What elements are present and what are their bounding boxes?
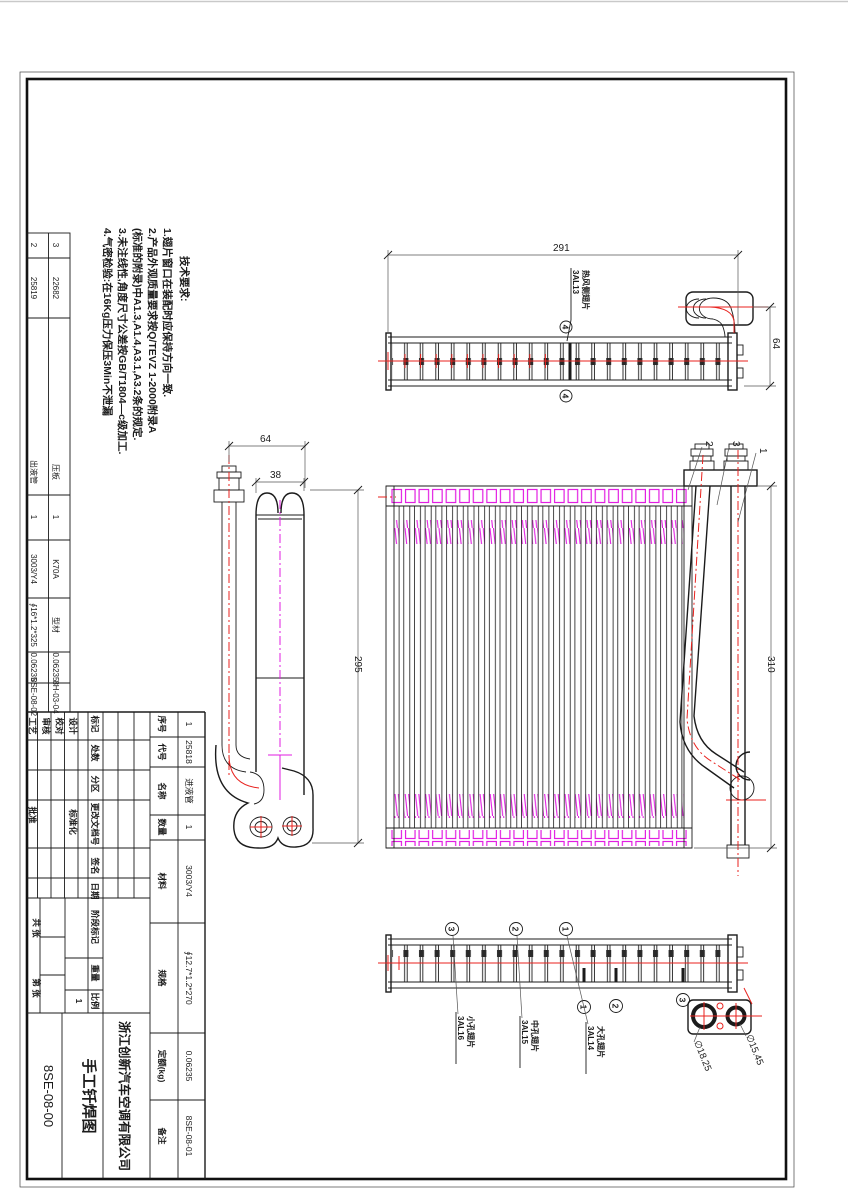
drawing-sheet: 技术要求: 1.翅片窗口在装配时应保持方向一致. 2.产品外观质量要求按Q/TE… [0,0,848,1200]
header-remark: 备注 [157,1126,167,1145]
notes-line-4: 3.未注线性,角度尺寸公差按GB/T1804—c级加工. [116,228,129,454]
cell: 3003/Y4 [184,865,194,897]
label-stage-mark: 阶段标记 [90,910,100,945]
callout-2: 2 [703,441,714,447]
cell: 0.06235 [184,1051,194,1082]
label-count: 处数 [90,743,100,762]
dim-295: 295 [310,486,364,847]
header-spec: 规格 [157,969,167,987]
cell: 0.06235 [51,653,60,682]
cell: ∮12.7*1.2*270 [184,951,194,1005]
drawing-title: 手工钎焊图 [80,1058,98,1133]
callout-fin1: 1 [561,927,571,932]
dim-310-text: 310 [765,656,776,673]
label-mark: 标记 [90,714,100,733]
header-name: 名称 [157,782,167,800]
cell: 25819 [29,277,38,300]
company-name: 浙江创新汽车空调有限公司 [117,1021,132,1171]
label-standardize: 标准化 [68,808,78,835]
fin2-code: 3AL15 [520,1020,529,1045]
fin3-code: 3AL16 [456,1016,465,1041]
label-zone: 分区 [90,775,100,793]
label-scale: 比例 [90,992,100,1010]
dim-291: 291 [384,243,742,333]
dim-64-side-text: 64 [260,434,272,445]
fin2-name: 中孔翅片 [530,1020,540,1052]
label-audit: 审核 [41,717,51,735]
notes-line-2: 2.产品外观质量要求按Q/TEVZ 1-2000附录A [146,228,159,434]
outlet-pipe [680,455,766,800]
callout-fin2: 2 [511,927,521,932]
cell: 3003/Y4 [29,554,38,584]
title-block: 工艺 审核 校对 设计 批准 标准化 标记 处数 分区 更改文档号 签名 日期 … [27,712,205,1179]
dim-port-large: ∅18.25 [691,1039,713,1073]
fin1-name: 大孔翅片 [596,1026,606,1058]
top-fitting-block [678,292,768,337]
side-elbow-casting [216,745,313,848]
fin4-code: 3AL13 [571,270,580,295]
port-flange [688,988,762,1034]
drawing-number: 8SE-08-00 [41,1065,56,1127]
fin1-code: 3AL14 [586,1026,595,1051]
dim-64-side: 64 [225,434,309,488]
front-fittings [684,444,757,486]
fin3-name: 小孔翅片 [466,1015,476,1048]
title-block-labels: 工艺 审核 校对 设计 批准 标准化 标记 处数 分区 更改文档号 签名 日期 … [28,714,101,1010]
cell: 1 [184,722,194,727]
dim-38: 38 [252,470,308,493]
cell: 1 [184,825,194,830]
notes-line-5: 4.气密检验:在16Kg压力保压3Min不泄漏 [101,228,114,416]
cell: ∮16*1.2*325 [29,603,38,647]
port-dims: ∅18.25 ∅15.45 [691,1024,765,1073]
technical-notes: 技术要求: 1.翅片窗口在装配时应保持方向一致. 2.产品外观质量要求按Q/TE… [101,228,191,454]
callout-4-bottom: 4 [561,394,571,399]
cell: 25818 [184,740,194,764]
bom-row-3: 3 22682 压板 1 K70A 型材 0.06235 8H-03-04 [51,243,61,714]
cell: 进液管 [184,778,194,804]
cell: 22682 [51,277,60,300]
callout-3: 3 [730,441,741,447]
dim-38-text: 38 [270,470,282,481]
header-code: 代号 [157,742,167,761]
view-bottom: 3 2 1 1 2 3 小孔翅片 3AL16 中孔翅片 3AL15 [378,923,765,1075]
callout-fin3: 3 [447,927,457,932]
dim-64-top: 64 [744,303,781,390]
label-weight: 重量 [90,964,100,982]
label-approve: 批准 [28,806,38,824]
label-sheets-total: 共 张 [32,918,42,938]
dim-295-text: 295 [352,656,363,673]
cell: 8SE-08-01 [184,1116,194,1157]
cell: 出液管 [29,460,39,484]
callout-1: 1 [757,448,768,454]
fin4-name: 热风侧翅片 [581,270,591,310]
cell: 压板 [51,464,61,480]
notes-title: 技术要求: [178,256,191,302]
bom-row-1: 1 25818 进液管 1 3003/Y4 ∮12.7*1.2*270 0.06… [184,722,194,1157]
cell: 2 [29,243,38,248]
notes-line-3: (标准的附录)中A1.3,A1.4,A3.1,A3.2条的规定. [131,228,144,440]
cell: 型材 [51,617,61,633]
cell: 1 [51,515,60,520]
label-change-doc: 更改文档号 [90,803,100,846]
label-sheet-no: 第 张 [32,978,42,998]
view-top: 4 4 热风侧翅片 3AL13 291 64 [378,243,781,402]
header-quota: 定额(kg) [157,1049,167,1083]
callout-fin2b: 2 [611,1004,621,1009]
tube-array [396,506,684,828]
label-signature: 签名 [90,856,100,874]
dim-291-text: 291 [553,243,570,254]
callout-fin3b: 3 [678,998,688,1003]
fin4-label: 热风侧翅片 3AL13 [567,268,591,341]
header-material: 材料 [157,871,167,890]
cell: 8SE-08-02 [29,678,38,717]
view-front: 2 3 1 310 [378,441,777,876]
bom-extension-table: 2 25819 出液管 1 3003/Y4 ∮16*1.2*325 0.0623… [27,233,70,717]
label-date: 日期 [90,882,100,900]
cell: 3 [51,243,60,248]
cell: 8H-03-04 [51,680,60,714]
bom-header-strip: 序号 代号 名称 数量 材料 规格 定额(kg) 备注 [150,714,205,1145]
fin-callouts-bottom: 1 2 3 [578,994,690,1014]
cell: K70A [51,559,60,579]
label-proof: 校对 [55,717,65,735]
view-side: 64 38 295 [214,434,364,848]
label-craft: 工艺 [28,717,38,735]
header-qty: 数量 [157,818,167,836]
inlet-pipe [727,450,750,876]
cell: 1 [29,515,38,520]
fin-callouts-top: 3 2 1 [446,923,573,936]
bom-row-2: 2 25819 出液管 1 3003/Y4 ∮16*1.2*325 0.0623… [29,243,39,717]
label-design: 设计 [68,717,78,735]
dim-64-text: 64 [770,338,781,350]
notes-line-1: 1.翅片窗口在装配时应保持方向一致. [161,228,174,397]
dim-port-small: ∅15.45 [743,1033,765,1067]
scale-value: 1 [74,999,84,1004]
header-seq: 序号 [157,714,167,733]
